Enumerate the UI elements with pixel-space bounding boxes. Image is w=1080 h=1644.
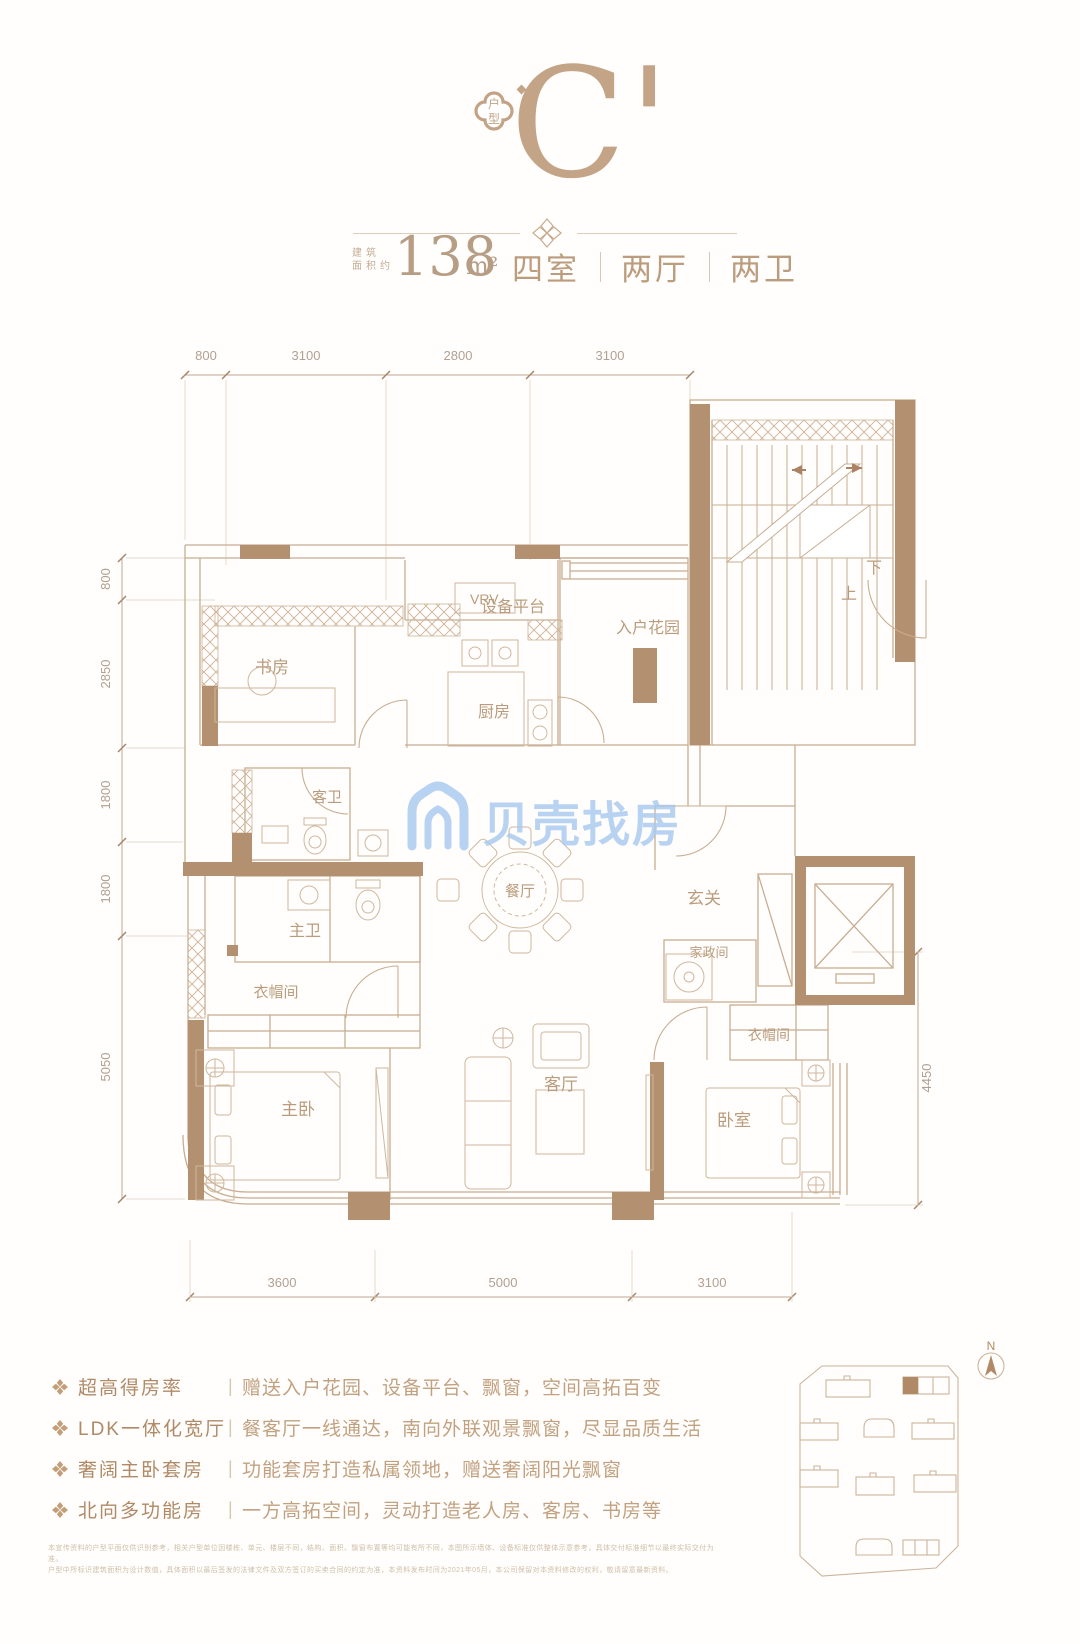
feature-row: LDK一体化宽厅 | 餐客厅一线通达，南向外联观景飘窗，尽显品质生活 [52,1407,712,1448]
feature-row: 奢阔主卧套房 | 功能套房打造私属领地，赠送奢阔阳光飘窗 [52,1448,712,1489]
dim-left-2850: 2850 [98,660,113,689]
area-prefix: 建筑 面积约 [352,247,396,273]
feature-row: 超高得房率 | 赠送入户花园、设备平台、飘窗，空间高拓百变 [52,1366,712,1407]
label-foyer: 玄关 [687,889,721,908]
label-master-bath: 主卫 [289,922,321,940]
feature-row: 北向多功能房 | 一方高拓空间，灵动打造老人房、客房、书房等 [52,1489,712,1530]
label-guest-bath: 客卫 [312,789,342,806]
site-plan: N [745,1280,1025,1600]
label-cloakroom-second: 衣帽间 [748,1027,790,1043]
spec-baths: 两卫 [730,244,798,289]
dim-left-5050: 5050 [98,1053,113,1082]
label-entry-garden: 入户花园 [616,619,680,637]
highlighted-unit [903,1377,918,1394]
label-dining: 餐厅 [505,883,535,900]
clover-bullet-icon [52,1379,68,1395]
label-kitchen: 厨房 [478,703,510,721]
spec-row: 四室 两厅 两卫 [512,244,798,289]
feature-divider: | [228,1417,242,1438]
feature-divider: | [228,1458,242,1479]
feature-desc: 功能套房打造私属领地，赠送奢阔阳光飘窗 [242,1455,712,1482]
label-housekeeping: 家政间 [689,945,728,960]
dim-bottom-3100: 3100 [698,1275,727,1290]
dim-left-800: 800 [98,568,113,590]
feature-divider: | [228,1499,242,1520]
label-stairs-up: 上 [841,585,857,603]
area-unit: m² [466,252,498,280]
dim-top-2800: 2800 [444,348,473,363]
spec-halls: 两厅 [621,244,689,289]
disclaimer: 本宣传资料的户型平面仅供识别参考，相关户型单位因楼栋、单元、楼层不同，结构、面积… [48,1543,716,1576]
label-living: 客厅 [544,1075,578,1094]
dim-right-4450: 4450 [919,1064,934,1093]
floorplan-drawing: 800 3100 2800 3100 800 2850 1800 1800 50… [80,330,1020,1340]
header-divider-right [577,233,737,234]
label-stairs-down: 下 [866,560,882,577]
dim-top-3100b: 3100 [596,348,625,363]
feature-desc: 餐客厅一线通达，南向外联观景飘窗，尽显品质生活 [242,1414,712,1441]
spec-rooms: 四室 [512,244,580,289]
feature-desc: 一方高拓空间，灵动打造老人房、客房、书房等 [242,1496,712,1523]
floorplan-poster: 户 型 C' 建筑 面积约 138 m² 四室 两厅 两卫 [0,0,1080,1644]
building-footprints [800,1376,956,1555]
beike-logo-icon [412,786,464,846]
unit-letter: C' [510,48,672,200]
clover-bullet-icon [52,1461,68,1477]
disclaimer-line2: 户型中所标识建筑面积为设计数值，具体面积以最后签发的法律文件及双方签订的买卖合同… [48,1565,716,1576]
north-label: N [987,1339,996,1353]
dim-top-800: 800 [195,348,217,363]
badge-char-top: 户 [488,96,500,111]
feature-title: 超高得房率 [78,1373,228,1400]
feature-title: 奢阔主卧套房 [78,1455,228,1482]
label-equipment-platform: 设备平台 [481,598,545,616]
spec-divider [709,252,710,282]
dim-left-1800: 1800 [98,781,113,810]
badge-char-bottom: 型 [488,112,500,126]
label-study: 书房 [255,658,289,677]
watermark: 贝壳找房 [412,786,682,852]
area-prefix-line1: 建筑 [352,247,396,260]
dim-bottom-5000: 5000 [489,1275,518,1290]
north-arrow-icon [985,1355,997,1376]
dim-top-3100: 3100 [292,348,321,363]
feature-title: 北向多功能房 [78,1496,228,1523]
spec-divider [600,252,601,282]
clover-bullet-icon [52,1502,68,1518]
label-cloakroom-master: 衣帽间 [253,984,298,1001]
dim-bottom-3600: 3600 [268,1275,297,1290]
dim-left-1800b: 1800 [98,875,113,904]
label-master-bedroom: 主卧 [281,1100,315,1119]
feature-title: LDK一体化宽厅 [78,1414,228,1441]
feature-desc: 赠送入户花园、设备平台、飘窗，空间高拓百变 [242,1373,712,1400]
label-bedroom: 卧室 [717,1111,751,1130]
feature-list: 超高得房率 | 赠送入户花园、设备平台、飘窗，空间高拓百变 LDK一体化宽厅 |… [52,1366,712,1530]
clover-bullet-icon [52,1420,68,1436]
area-prefix-line2: 面积约 [352,260,396,273]
feature-divider: | [228,1376,242,1397]
disclaimer-line1: 本宣传资料的户型平面仅供识别参考，相关户型单位因楼栋、单元、楼层不同，结构、面积… [48,1543,716,1565]
watermark-text: 贝壳找房 [482,799,682,852]
